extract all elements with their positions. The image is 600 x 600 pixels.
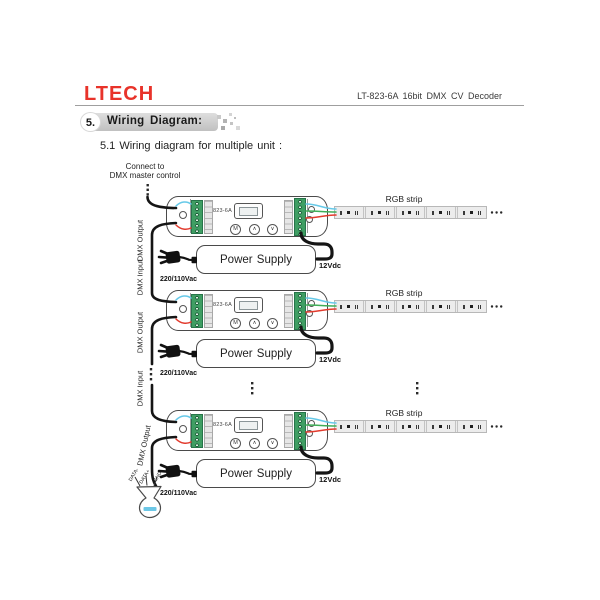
led-segment <box>335 301 366 312</box>
dmx-terminal-block <box>191 294 203 328</box>
led-segment <box>458 301 486 312</box>
lcd-screen <box>239 421 258 430</box>
menu-button: M <box>230 318 241 329</box>
lcd-screen <box>239 207 258 216</box>
dmx-terminal-block <box>191 200 203 234</box>
rgb-strip-label: RGB strip <box>334 288 474 298</box>
up-button: ∧ <box>249 438 260 449</box>
terminal-housing <box>284 414 293 448</box>
wire-hole <box>306 216 313 223</box>
output-voltage-label: 12Vdc <box>319 261 341 270</box>
header-divider <box>75 105 524 106</box>
wire-hole <box>308 206 315 213</box>
menu-button: M <box>230 438 241 449</box>
led-segment <box>366 301 397 312</box>
power-supply-box: Power Supply <box>196 339 316 368</box>
up-button: ∧ <box>249 318 260 329</box>
down-button: ∨ <box>267 224 278 235</box>
terminal-housing <box>284 294 293 328</box>
led-segment <box>427 207 458 218</box>
product-title: LT-823-6A 16bit DMX CV Decoder <box>280 91 502 101</box>
section-title: Wiring Diagram: <box>107 115 202 127</box>
output-voltage-label: 12Vdc <box>319 475 341 484</box>
input-voltage-label: 220/110Vac <box>160 370 197 377</box>
model-label: 823-6A <box>213 208 232 214</box>
lcd-screen <box>239 301 258 310</box>
dmx-terminal-block <box>191 414 203 448</box>
mounting-hole <box>179 425 187 433</box>
ltech-logo: LTECH <box>84 83 154 106</box>
decoder-unit-2: RGB strip 823-6A M ∧ ∨ Power Supply 220/… <box>0 290 600 385</box>
model-label: 823-6A <box>213 302 232 308</box>
decoder-unit-3: RGB strip 823-6A M ∧ ∨ Power Supply 220/… <box>0 410 600 505</box>
wire-hole <box>308 300 315 307</box>
output-terminal-block <box>294 412 306 450</box>
model-label: 823-6A <box>213 422 232 428</box>
input-voltage-label: 220/110Vac <box>160 490 197 497</box>
wire-hole <box>306 310 313 317</box>
mounting-hole <box>179 211 187 219</box>
dmx-decoder: 823-6A M ∧ ∨ <box>166 410 328 451</box>
manual-page: LTECH LT-823-6A 16bit DMX CV Decoder 5. … <box>0 0 600 600</box>
mounting-hole <box>179 305 187 313</box>
terminal-housing <box>284 200 293 234</box>
lcd-display <box>234 297 263 313</box>
led-segment <box>397 207 428 218</box>
section-heading-bar: 5. Wiring Diagram: <box>82 113 218 131</box>
dmx-decoder: 823-6A M ∧ ∨ <box>166 290 328 331</box>
led-segment <box>458 421 486 432</box>
wire-hole <box>306 430 313 437</box>
led-segment <box>427 301 458 312</box>
wire-hole <box>308 420 315 427</box>
output-terminal-block <box>294 198 306 236</box>
output-voltage-label: 12Vdc <box>319 355 341 364</box>
terminal-housing <box>204 294 213 328</box>
led-segment <box>335 421 366 432</box>
dmx-master-control-label: Connect to DMX master control <box>101 163 189 180</box>
led-segment <box>366 207 397 218</box>
led-segment <box>458 207 486 218</box>
decoder-unit-1: RGB strip 823-6A M ∧ ∨ Power Supply 220/… <box>0 196 600 291</box>
led-segment <box>397 421 428 432</box>
cable-end-band <box>144 507 157 511</box>
output-terminal-block <box>294 292 306 330</box>
led-segment <box>366 421 397 432</box>
rgb-strip <box>334 206 487 219</box>
rgb-strip-label: RGB strip <box>334 408 474 418</box>
down-button: ∨ <box>267 438 278 449</box>
input-voltage-label: 220/110Vac <box>160 276 197 283</box>
up-button: ∧ <box>249 224 260 235</box>
power-supply-box: Power Supply <box>196 245 316 274</box>
down-button: ∨ <box>267 318 278 329</box>
rgb-strip <box>334 420 487 433</box>
terminal-housing <box>204 414 213 448</box>
lcd-display <box>234 203 263 219</box>
led-segment <box>335 207 366 218</box>
subsection-title: 5.1 Wiring diagram for multiple unit : <box>100 140 282 152</box>
menu-button: M <box>230 224 241 235</box>
section-number: 5. <box>80 112 101 132</box>
rgb-strip <box>334 300 487 313</box>
power-supply-box: Power Supply <box>196 459 316 488</box>
terminal-housing <box>204 200 213 234</box>
dmx-decoder: 823-6A M ∧ ∨ <box>166 196 328 237</box>
led-segment <box>397 301 428 312</box>
lcd-display <box>234 417 263 433</box>
rgb-strip-label: RGB strip <box>334 194 474 204</box>
led-segment <box>427 421 458 432</box>
